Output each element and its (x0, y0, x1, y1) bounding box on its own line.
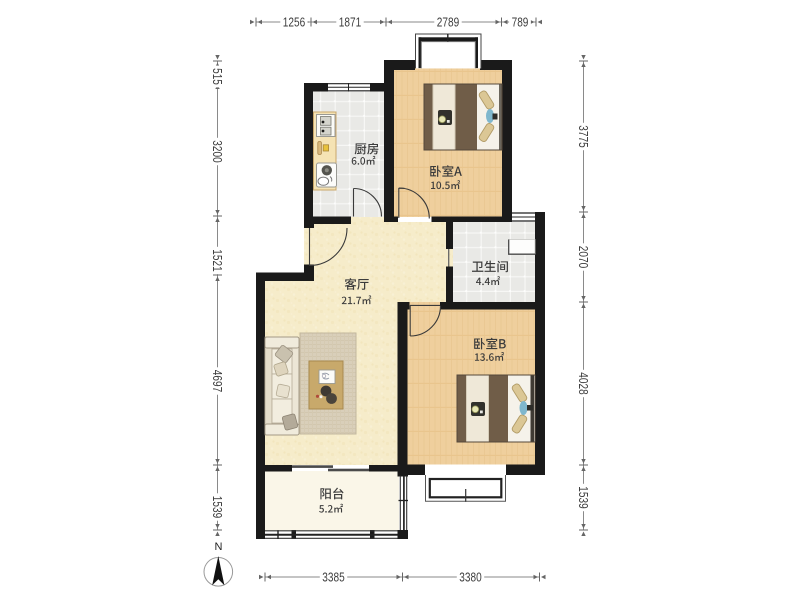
svg-text:4028: 4028 (576, 372, 591, 394)
svg-text:1871: 1871 (339, 15, 361, 30)
svg-text:1539: 1539 (576, 486, 591, 508)
svg-text:515: 515 (210, 68, 225, 85)
svg-text:3380: 3380 (459, 570, 481, 585)
svg-text:3200: 3200 (210, 140, 225, 162)
svg-text:3775: 3775 (576, 125, 591, 147)
svg-text:789: 789 (512, 15, 529, 30)
svg-text:2789: 2789 (437, 15, 459, 30)
svg-text:1521: 1521 (210, 249, 225, 271)
svg-text:2070: 2070 (576, 246, 591, 268)
svg-text:1256: 1256 (283, 15, 305, 30)
svg-text:3385: 3385 (322, 570, 344, 585)
svg-text:4697: 4697 (210, 370, 225, 392)
svg-text:N: N (215, 541, 223, 553)
svg-text:1539: 1539 (210, 496, 225, 518)
